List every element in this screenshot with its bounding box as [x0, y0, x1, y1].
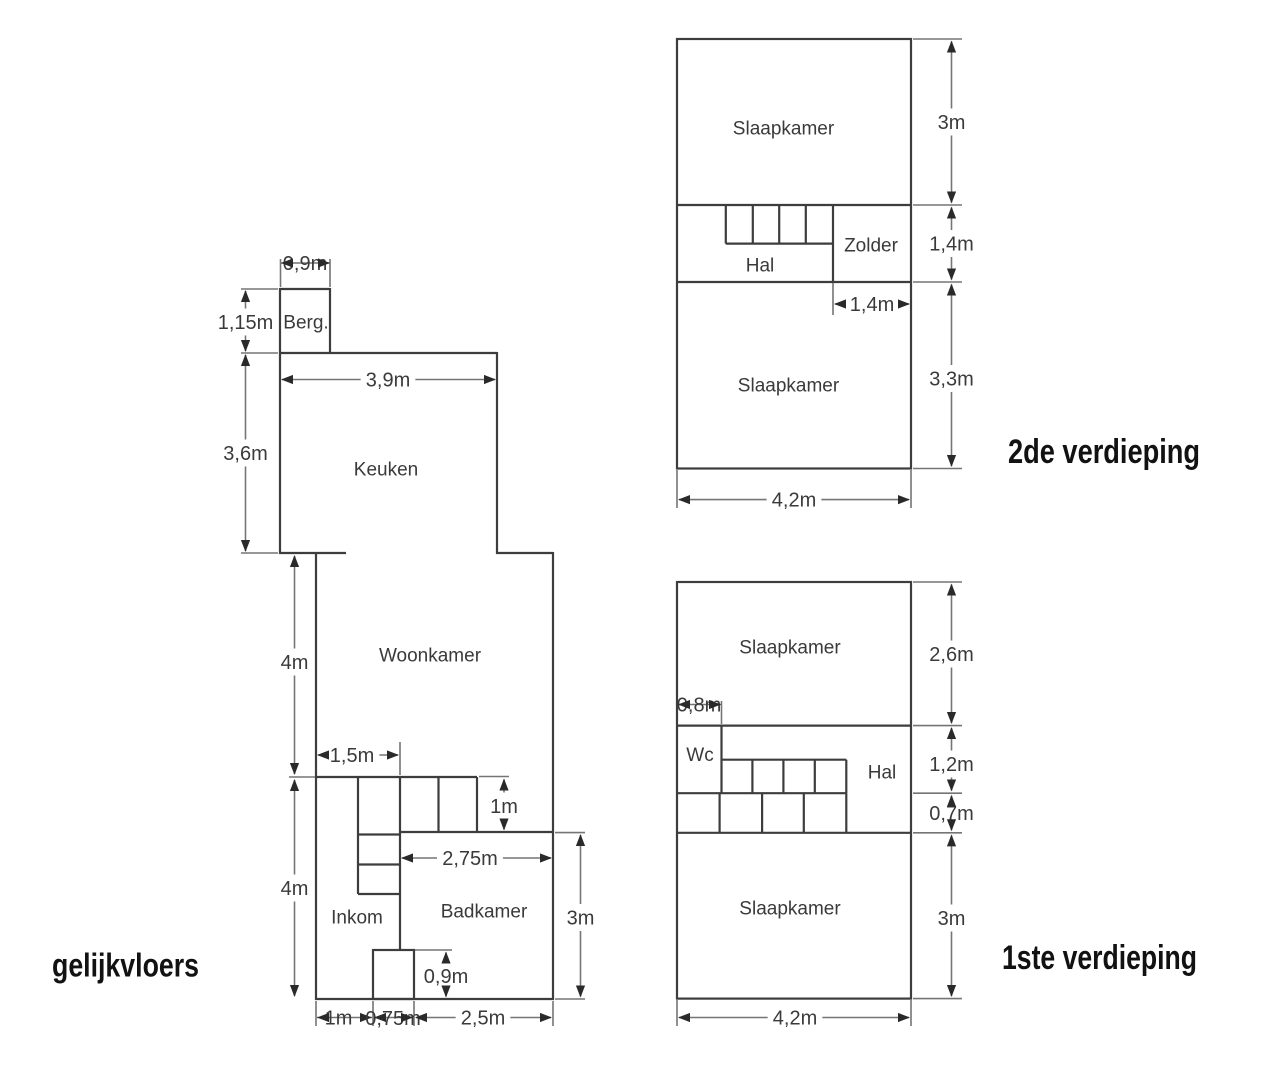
svg-text:1,4m: 1,4m	[850, 294, 894, 316]
svg-text:Hal: Hal	[868, 763, 897, 784]
svg-text:3m: 3m	[938, 908, 966, 930]
svg-text:2,75m: 2,75m	[442, 848, 498, 870]
svg-text:1,15m: 1,15m	[218, 312, 274, 334]
svg-text:Woonkamer: Woonkamer	[379, 646, 482, 667]
svg-text:0,75m: 0,75m	[365, 1008, 421, 1030]
svg-text:4m: 4m	[281, 652, 309, 674]
svg-text:0,9m: 0,9m	[424, 966, 468, 988]
svg-text:1ste verdieping: 1ste verdieping	[1002, 939, 1197, 977]
svg-text:4,2m: 4,2m	[772, 490, 816, 512]
svg-text:1,5m: 1,5m	[330, 745, 374, 767]
svg-text:3,3m: 3,3m	[929, 369, 973, 391]
svg-text:Slaapkamer: Slaapkamer	[739, 899, 841, 920]
svg-text:2de verdieping: 2de verdieping	[1008, 433, 1200, 471]
svg-text:Keuken: Keuken	[354, 460, 418, 481]
svg-text:gelijkvloers: gelijkvloers	[52, 947, 199, 984]
svg-text:Wc: Wc	[686, 745, 713, 766]
svg-text:Slaapkamer: Slaapkamer	[738, 376, 840, 397]
svg-text:Slaapkamer: Slaapkamer	[733, 119, 835, 140]
svg-text:2,6m: 2,6m	[929, 644, 973, 666]
svg-text:3m: 3m	[938, 112, 966, 134]
svg-text:Zolder: Zolder	[844, 236, 899, 257]
svg-text:3m: 3m	[567, 908, 595, 930]
svg-text:Inkom: Inkom	[331, 908, 383, 929]
svg-text:3,6m: 3,6m	[223, 443, 267, 465]
svg-text:Slaapkamer: Slaapkamer	[739, 638, 841, 659]
svg-text:3,9m: 3,9m	[366, 370, 410, 392]
svg-text:4,2m: 4,2m	[773, 1008, 817, 1030]
svg-text:Badkamer: Badkamer	[441, 902, 528, 923]
svg-text:Hal: Hal	[746, 256, 775, 277]
svg-text:4m: 4m	[281, 878, 309, 900]
svg-text:Berg.: Berg.	[283, 313, 328, 334]
svg-text:1,4m: 1,4m	[929, 234, 973, 256]
svg-text:2,5m: 2,5m	[461, 1008, 505, 1030]
svg-text:1,2m: 1,2m	[929, 754, 973, 776]
svg-text:1m: 1m	[490, 796, 518, 818]
